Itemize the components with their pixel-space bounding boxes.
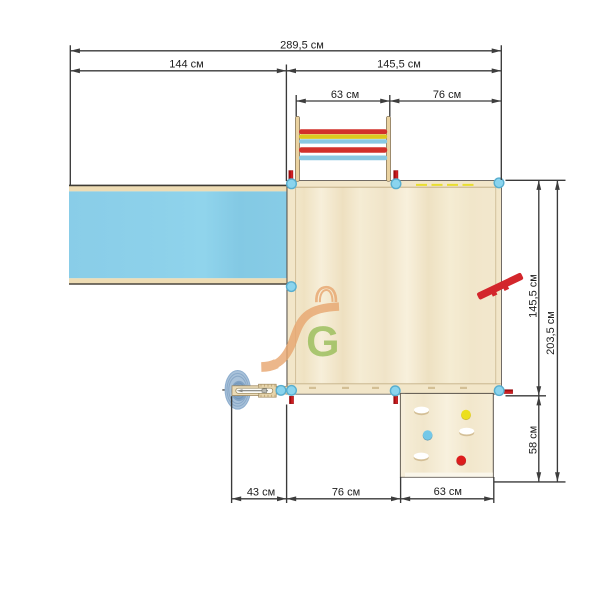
svg-text:76 см: 76 см — [433, 89, 461, 101]
svg-text:203,5 см: 203,5 см — [545, 311, 557, 355]
svg-text:289,5 см: 289,5 см — [280, 39, 324, 51]
svg-text:144 см: 144 см — [169, 59, 203, 71]
svg-text:G: G — [306, 318, 339, 366]
svg-text:43 см: 43 см — [247, 486, 275, 498]
svg-text:58 см: 58 см — [527, 426, 539, 454]
svg-text:63 см: 63 см — [434, 486, 462, 498]
svg-text:145,5 см: 145,5 см — [527, 274, 539, 318]
svg-text:63 см: 63 см — [331, 89, 359, 101]
svg-text:76 см: 76 см — [332, 486, 360, 498]
svg-text:145,5 см: 145,5 см — [377, 59, 421, 71]
